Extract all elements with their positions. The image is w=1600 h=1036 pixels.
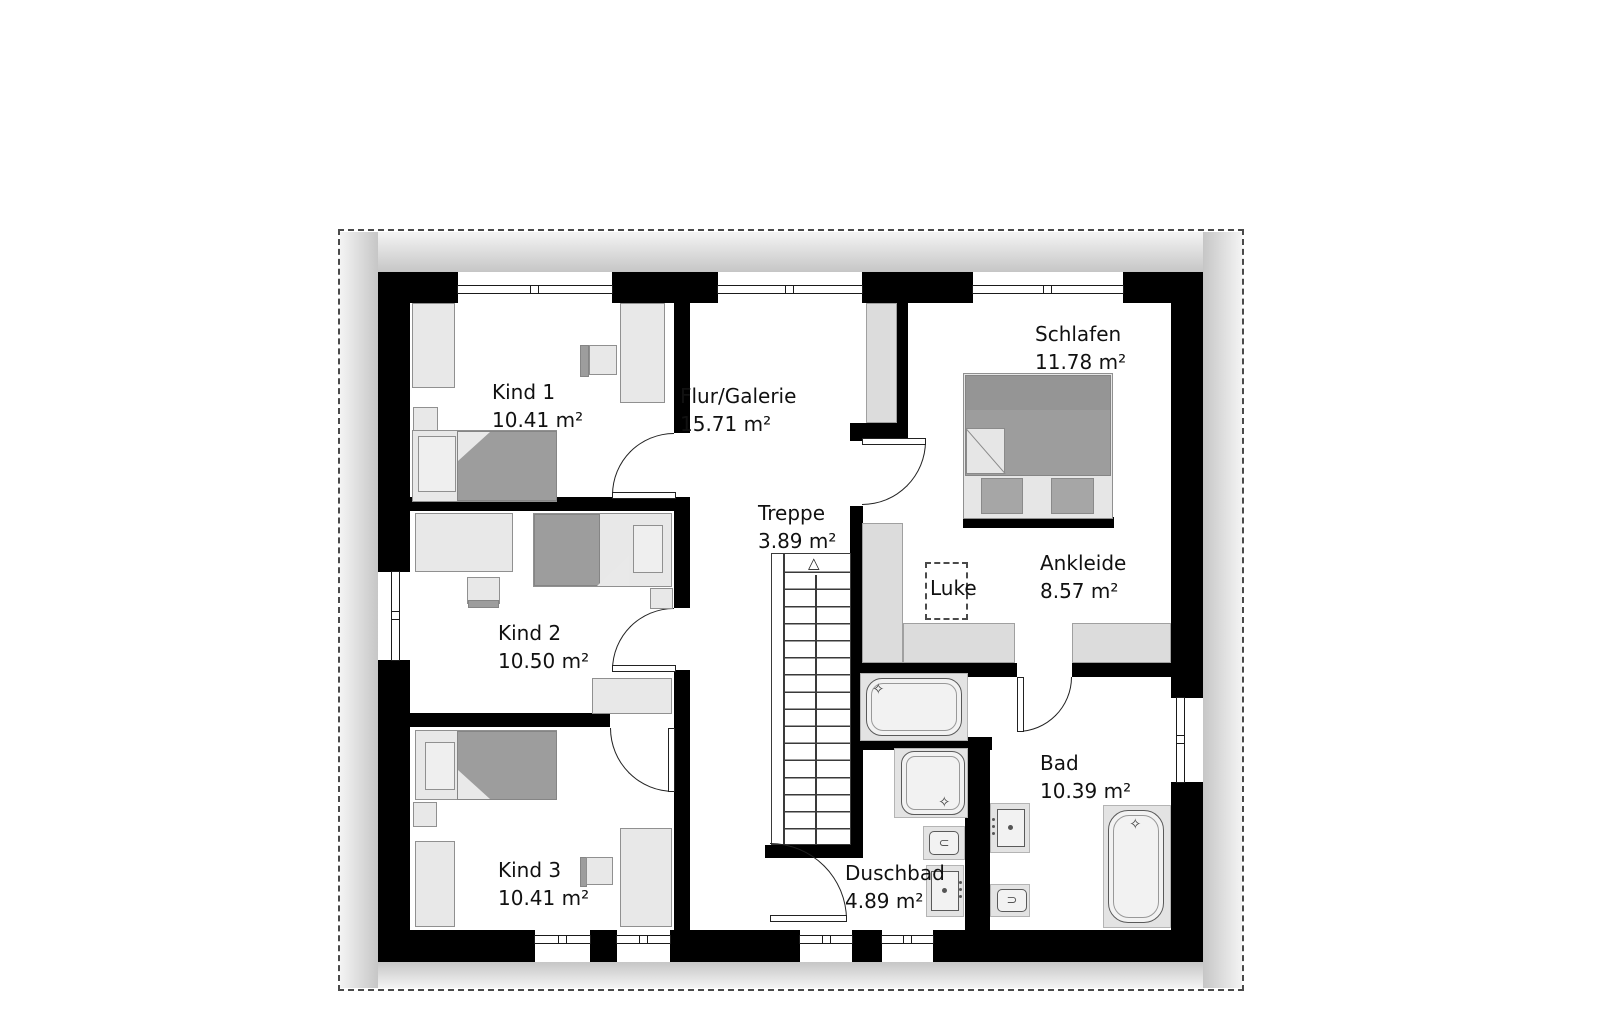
stairs-treads <box>785 556 850 844</box>
knee-wall <box>903 623 1015 663</box>
floor-plan: △ ✧ ✧ <box>0 0 1600 1036</box>
window <box>1171 698 1203 782</box>
room-name: Flur/Galerie <box>680 382 796 410</box>
window-mullion <box>639 935 648 944</box>
window-mullion <box>1043 285 1052 294</box>
outer-wall-right <box>1171 272 1203 962</box>
desk <box>415 513 513 572</box>
room-area: 15.71 m² <box>680 410 796 438</box>
hatch-name: Luke <box>930 574 977 602</box>
window <box>535 930 590 962</box>
room-label-kind3: Kind 3 10.41 m² <box>498 856 589 912</box>
sparkle-icon: ✧ <box>938 795 951 810</box>
bed-pillow <box>418 436 456 492</box>
window-mullion <box>903 935 912 944</box>
tap-dot <box>959 895 962 898</box>
window <box>973 272 1123 303</box>
door-leaf <box>770 915 847 922</box>
room-area: 10.39 m² <box>1040 777 1131 805</box>
window <box>617 930 670 962</box>
bed-pillow <box>425 742 455 790</box>
washbasin-drain <box>1008 825 1013 830</box>
wall-segment <box>1072 663 1171 677</box>
room-area: 10.41 m² <box>498 884 589 912</box>
room-area: 4.89 m² <box>845 887 945 915</box>
wall-segment <box>674 497 690 608</box>
tap-dot <box>992 825 995 828</box>
room-label-schlafen: Schlafen 11.78 m² <box>1035 320 1126 376</box>
room-label-ankleide: Ankleide 8.57 m² <box>1040 549 1126 605</box>
room-label-duschbad: Duschbad 4.89 m² <box>845 859 945 915</box>
toilet: ⊂ <box>929 831 959 855</box>
desk-chair-back <box>580 345 589 377</box>
door-leaf <box>1017 677 1024 732</box>
room-name: Bad <box>1040 749 1131 777</box>
window-mullion <box>530 285 539 294</box>
wall-segment <box>965 737 990 930</box>
desk <box>620 828 672 927</box>
toilet-bowl-icon: ⊃ <box>1007 894 1018 907</box>
room-label-kind2: Kind 2 10.50 m² <box>498 619 589 675</box>
gallery-knee-wall <box>866 303 897 423</box>
door-leaf <box>862 438 926 445</box>
bed-pillow <box>981 478 1023 514</box>
room-area: 10.41 m² <box>492 406 583 434</box>
window-mullion <box>822 935 831 944</box>
room-name: Treppe <box>758 499 836 527</box>
room-name: Duschbad <box>845 859 945 887</box>
room-label-treppe: Treppe 3.89 m² <box>758 499 836 555</box>
room-label-bad: Bad 10.39 m² <box>1040 749 1131 805</box>
desk <box>620 303 665 403</box>
knee-wall <box>862 523 903 663</box>
blanket-fold <box>458 432 490 461</box>
wardrobe <box>415 841 455 927</box>
nightstand <box>650 588 673 609</box>
roof-hatch-label: Luke <box>930 574 977 602</box>
desk-chair <box>589 345 617 375</box>
bed-pillow <box>1051 478 1094 514</box>
sparkle-icon: ✧ <box>1129 817 1142 832</box>
wall-segment <box>897 303 908 425</box>
bed-blanket <box>534 514 600 586</box>
nightstand <box>413 802 437 827</box>
room-area: 10.50 m² <box>498 647 589 675</box>
room-area: 11.78 m² <box>1035 348 1126 376</box>
stairs-center-line <box>815 575 817 845</box>
wall-segment <box>674 670 690 930</box>
room-area: 8.57 m² <box>1040 577 1126 605</box>
wall-segment <box>410 713 610 727</box>
room-label-flur: Flur/Galerie 15.71 m² <box>680 382 796 438</box>
door-leaf <box>612 492 676 499</box>
window <box>800 930 852 962</box>
knee-wall <box>1072 623 1171 663</box>
window-mullion <box>558 935 567 944</box>
desk-chair-back <box>468 600 499 608</box>
window-mullion <box>785 285 794 294</box>
desk-chair <box>586 857 613 885</box>
room-name: Schlafen <box>1035 320 1126 348</box>
door-leaf <box>612 665 676 672</box>
room-name: Kind 3 <box>498 856 589 884</box>
room-label-kind1: Kind 1 10.41 m² <box>492 378 583 434</box>
door-leaf <box>668 728 675 792</box>
blanket-fold <box>458 770 490 799</box>
tap-dot <box>959 881 962 884</box>
room-name: Ankleide <box>1040 549 1126 577</box>
tap-dot <box>992 832 995 835</box>
blanket-fold <box>597 555 629 586</box>
window <box>458 272 612 303</box>
toilet-bowl-icon: ⊂ <box>939 837 950 850</box>
wardrobe <box>412 303 455 388</box>
tap-dot <box>959 888 962 891</box>
stairs-direction-arrow-icon: △ <box>808 556 820 571</box>
tap-dot <box>992 818 995 821</box>
room-name: Kind 2 <box>498 619 589 647</box>
room-name: Kind 1 <box>492 378 583 406</box>
sparkle-icon: ✧ <box>872 682 885 697</box>
outer-wall-bottom <box>378 930 1203 962</box>
shower-inner-line <box>906 756 960 810</box>
window <box>378 572 410 660</box>
wardrobe <box>592 678 672 714</box>
room-area: 3.89 m² <box>758 527 836 555</box>
window-mullion <box>1176 735 1185 744</box>
shower-tray <box>901 751 965 815</box>
window-mullion <box>391 611 400 620</box>
window <box>882 930 933 962</box>
toilet: ⊃ <box>997 889 1027 912</box>
bed-pillow <box>633 525 663 573</box>
window <box>718 272 862 303</box>
bed-blanket-upper <box>966 376 1110 410</box>
